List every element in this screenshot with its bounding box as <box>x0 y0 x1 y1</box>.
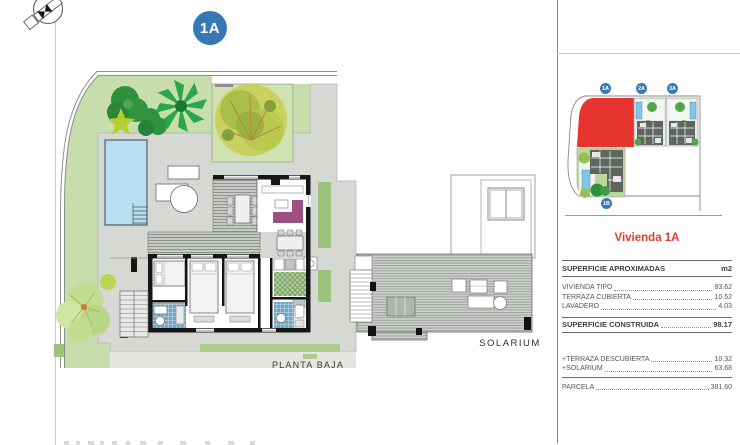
unit-1b <box>577 148 625 198</box>
site-badge-3a: 3A <box>667 83 678 94</box>
bed-bench <box>194 316 214 322</box>
bed-bench <box>230 316 250 322</box>
unit-badge-1a-large: 1A <box>193 11 227 45</box>
row-value: 63.68 <box>714 364 732 374</box>
bed-2 <box>190 261 218 313</box>
site-badge-1b: 1B <box>601 198 612 209</box>
table-row-solarium: +SOLARIUM 63.68 <box>562 364 732 374</box>
row-value: 381.60 <box>711 383 732 393</box>
outdoor-dining-table <box>235 195 250 223</box>
cropped-edge-artifacts <box>64 441 255 445</box>
skylight <box>488 188 524 220</box>
highlighted-plot-1a <box>577 98 634 147</box>
garden-chip-left <box>54 344 64 357</box>
dot-leader <box>661 327 711 328</box>
table-row-terraza-cubierta: TERRAZA CUBIERTA 10.52 <box>562 293 732 303</box>
row-label: LAVADERO <box>562 302 599 312</box>
indoor-dining-set <box>277 230 303 256</box>
row-value: 4.03 <box>718 302 732 312</box>
row-value: 98.17 <box>713 320 732 330</box>
dot-leader <box>605 371 713 372</box>
table-row-superficie-construida: SUPERFICIE CONSTRUIDA 98.17 <box>562 318 732 332</box>
row-label: SUPERFICIE CONSTRUIDA <box>562 320 659 330</box>
rule <box>562 276 732 277</box>
table-header: SUPERFICIE APROXIMADAS m2 <box>562 261 732 276</box>
table-row-parcela: PARCELA 381.60 <box>562 383 732 393</box>
row-value: 83.62 <box>714 283 732 293</box>
floor-plan-label: PLANTA BAJA <box>247 360 369 370</box>
dot-leader <box>633 299 712 300</box>
table-row-lavadero: LAVADERO 4.03 <box>562 302 732 312</box>
garden-strip-right2 <box>318 270 331 302</box>
site-badge-2a: 2A <box>636 83 647 94</box>
solarium-stairs <box>350 270 372 322</box>
stair-landing <box>355 256 372 270</box>
table-extra-rows: +TERRAZA DESCUBIERTA 10.32 +SOLARIUM 63.… <box>562 355 732 374</box>
tv-unit <box>262 186 303 193</box>
areas-panel: Vivienda 1A SUPERFICIE APROXIMADAS m2 VI… <box>562 232 732 392</box>
bathroom-1 <box>152 303 186 328</box>
garden-chip <box>303 354 317 359</box>
site-badge-1a: 1A <box>600 83 611 94</box>
garden-strip-bottom <box>200 344 340 352</box>
rule <box>562 332 732 333</box>
row-value: 10.32 <box>714 355 732 365</box>
architectural-sheet: 1A 1A 2A 3A 1B PLANTA BAJA SOLARIUM Vivi… <box>0 0 740 445</box>
row-label: PARCELA <box>562 383 594 393</box>
dot-leader <box>651 361 712 362</box>
table-header-unit: m2 <box>721 264 732 273</box>
row-label: TERRAZA CUBIERTA <box>562 293 631 303</box>
tree-planter-square <box>212 84 293 162</box>
kitchen <box>274 259 306 296</box>
bed-3 <box>226 261 254 313</box>
site-plan <box>565 96 722 216</box>
garden-strip-right <box>318 182 331 248</box>
swimming-pool <box>105 140 147 225</box>
coffee-table <box>275 200 288 208</box>
bathroom-2 <box>274 302 304 328</box>
unit-3a-house <box>669 121 695 145</box>
rule <box>562 377 732 378</box>
dot-leader <box>596 389 708 390</box>
dot-leader <box>614 290 712 291</box>
panel-title: Vivienda 1A <box>562 232 732 245</box>
units-2a-3a <box>634 98 699 146</box>
north-arrow-icon <box>24 0 63 30</box>
row-value: 10.52 <box>714 293 732 303</box>
table-row-terraza-descubierta: +TERRAZA DESCUBIERTA 10.32 <box>562 355 732 365</box>
row-label: +SOLARIUM <box>562 364 603 374</box>
solarium-plan <box>350 175 535 340</box>
row-label: +TERRAZA DESCUBIERTA <box>562 355 649 365</box>
row-label: VIVIENDA TIPO <box>562 283 612 293</box>
bed-1 <box>154 261 185 286</box>
dot-leader <box>601 309 716 310</box>
solarium-label: SOLARIUM <box>455 338 565 349</box>
table-rows: VIVIENDA TIPO 83.62 TERRAZA CUBIERTA 10.… <box>562 283 732 312</box>
main-floor-plan <box>54 72 356 369</box>
table-header-label: SUPERFICIE APROXIMADAS <box>562 264 665 273</box>
table-row-vivienda-tipo: VIVIENDA TIPO 83.62 <box>562 283 732 293</box>
